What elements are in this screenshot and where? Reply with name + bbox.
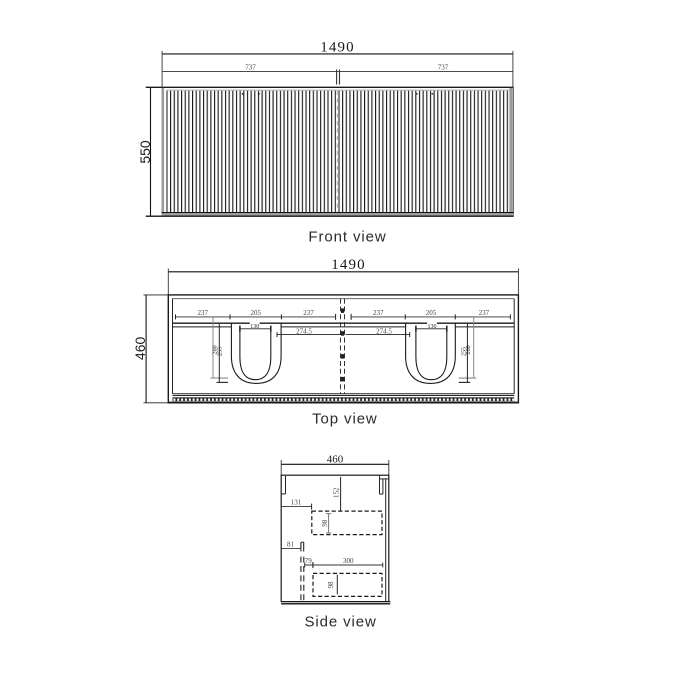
- svg-text:Side view: Side view: [304, 613, 376, 630]
- svg-text:274.5: 274.5: [376, 327, 392, 335]
- svg-text:237: 237: [303, 309, 314, 317]
- svg-text:550: 550: [137, 140, 153, 164]
- svg-text:737: 737: [438, 64, 449, 72]
- svg-text:255: 255: [460, 347, 467, 356]
- svg-text:237: 237: [198, 309, 209, 317]
- svg-text:274.5: 274.5: [296, 327, 312, 335]
- svg-text:Top view: Top view: [312, 411, 378, 428]
- svg-text:205: 205: [250, 309, 261, 317]
- svg-text:81: 81: [287, 540, 295, 548]
- svg-text:205: 205: [426, 309, 437, 317]
- svg-text:1490: 1490: [331, 257, 365, 273]
- svg-text:237: 237: [373, 309, 384, 317]
- svg-text:130: 130: [250, 324, 259, 330]
- svg-text:98: 98: [321, 519, 329, 527]
- svg-text:79: 79: [305, 557, 313, 565]
- svg-text:237: 237: [479, 309, 490, 317]
- svg-text:300: 300: [343, 557, 354, 565]
- svg-text:152: 152: [333, 487, 341, 498]
- svg-text:255: 255: [216, 347, 223, 356]
- svg-text:130: 130: [428, 324, 437, 330]
- svg-text:1490: 1490: [320, 40, 354, 56]
- svg-text:98: 98: [327, 581, 335, 589]
- svg-text:Front view: Front view: [308, 228, 386, 245]
- svg-text:460: 460: [132, 337, 148, 361]
- svg-text:460: 460: [327, 453, 344, 465]
- svg-text:737: 737: [245, 64, 256, 72]
- svg-text:131: 131: [291, 499, 302, 507]
